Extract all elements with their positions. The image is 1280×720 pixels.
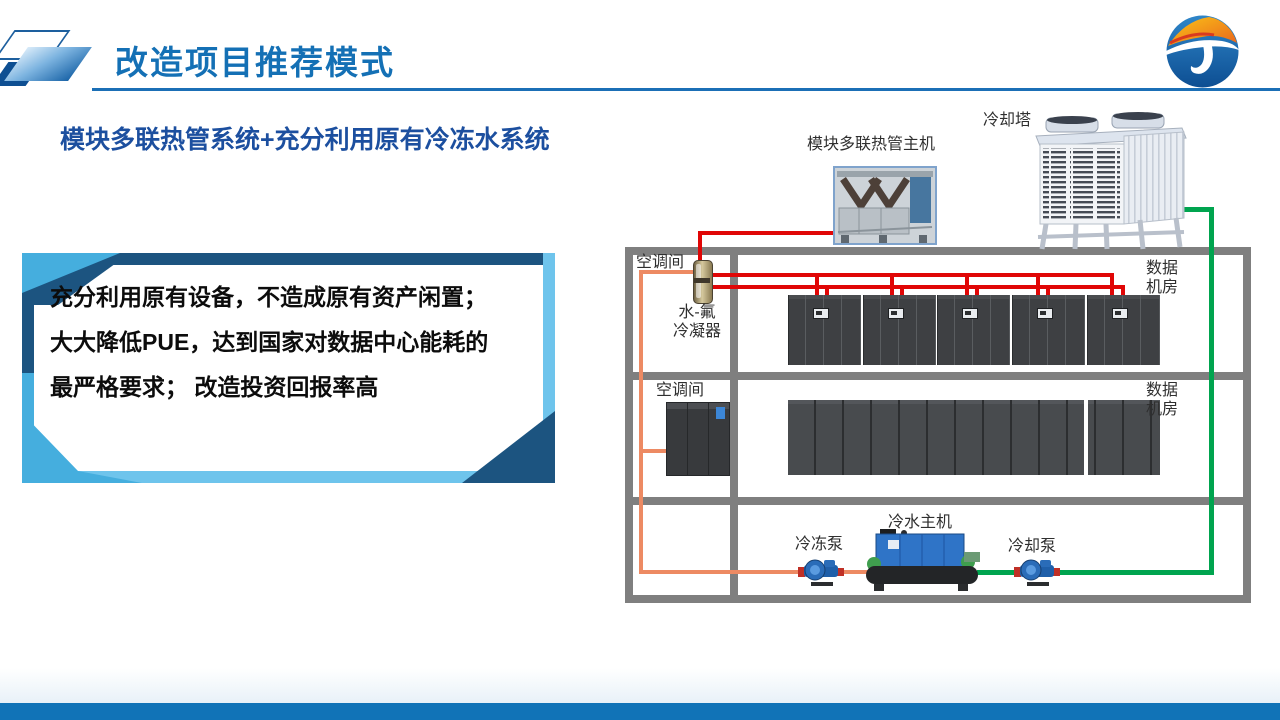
heat-pipe-unit-label: 模块多联热管主机 [806, 135, 936, 154]
key-point-3: 改造投资回报率高 [194, 374, 378, 400]
slide: 改造项目推荐模式 模块多联热管系统+充分利用原有冷冻水系统 [0, 0, 1280, 720]
rack-row-gap [1084, 400, 1088, 475]
chilled-water-pump-label: 冷冻泵 [795, 535, 843, 554]
room-frame-left [625, 247, 633, 603]
crac-display [962, 308, 978, 319]
page-title: 改造项目推荐模式 [115, 36, 395, 84]
title-underline [92, 88, 1280, 91]
footer-bar [0, 703, 1280, 720]
company-logo-icon [1164, 13, 1241, 90]
rack-group [788, 295, 861, 365]
refrigerant-drop [890, 277, 894, 296]
refrigerant-pipe [700, 231, 836, 235]
crac-display [888, 308, 904, 319]
condenser-label: 水-氟 冷凝器 [664, 303, 730, 341]
refrigerant-return-header [708, 285, 1125, 289]
footer-fade [0, 668, 1280, 703]
slide-subtitle: 模块多联热管系统+充分利用原有冷冻水系统 [60, 120, 550, 156]
cooling-tower-label: 冷却塔 [983, 111, 1031, 130]
crac-display [1112, 308, 1128, 319]
cooling-water-pipe [977, 570, 1214, 575]
water-chiller-image [860, 528, 984, 597]
crac-unit [666, 402, 730, 476]
chilled-water-pump-image [798, 554, 844, 593]
cooling-water-riser [1209, 207, 1214, 574]
room-frame-divider-2 [625, 497, 1251, 505]
chilled-water-riser [639, 270, 643, 574]
rack-row [788, 400, 1160, 475]
chilled-water-branch [643, 449, 668, 453]
crac-display [1037, 308, 1053, 319]
refrigerant-drop [965, 277, 969, 296]
ac-room-2-label: 空调间 [656, 381, 704, 400]
ac-room-1-label: 空调间 [636, 253, 684, 272]
water-fluorine-condenser [693, 260, 713, 304]
rack-group [863, 295, 936, 365]
rack-group [937, 295, 1010, 365]
crac-display [813, 308, 829, 319]
cooling-tower-image [1028, 110, 1190, 257]
refrigerant-supply-header [708, 273, 1114, 277]
key-points-box: 充分利用原有设备，不造成原有资产闲置； 大大降低PUE，达到国家对数据中心能耗的… [22, 253, 555, 483]
rack-group [1012, 295, 1085, 365]
rack-group [1087, 295, 1160, 365]
room-frame-vertical-divider [730, 247, 738, 603]
key-points-text: 充分利用原有设备，不造成原有资产闲置； 大大降低PUE，达到国家对数据中心能耗的… [50, 275, 502, 410]
room-frame-divider-1 [625, 372, 1251, 380]
refrigerant-drop [1036, 277, 1040, 296]
data-room-2-label: 数据 机房 [1146, 381, 1178, 419]
heat-pipe-unit-image [833, 166, 937, 250]
data-room-1-label: 数据 机房 [1146, 259, 1178, 297]
refrigerant-drop [815, 277, 819, 296]
key-point-1: 充分利用原有设备，不造成原有资产闲置； [50, 284, 487, 310]
crac-logo-chip [716, 407, 725, 419]
cooling-water-pump-image [1014, 554, 1060, 593]
room-frame-right [1243, 247, 1251, 603]
